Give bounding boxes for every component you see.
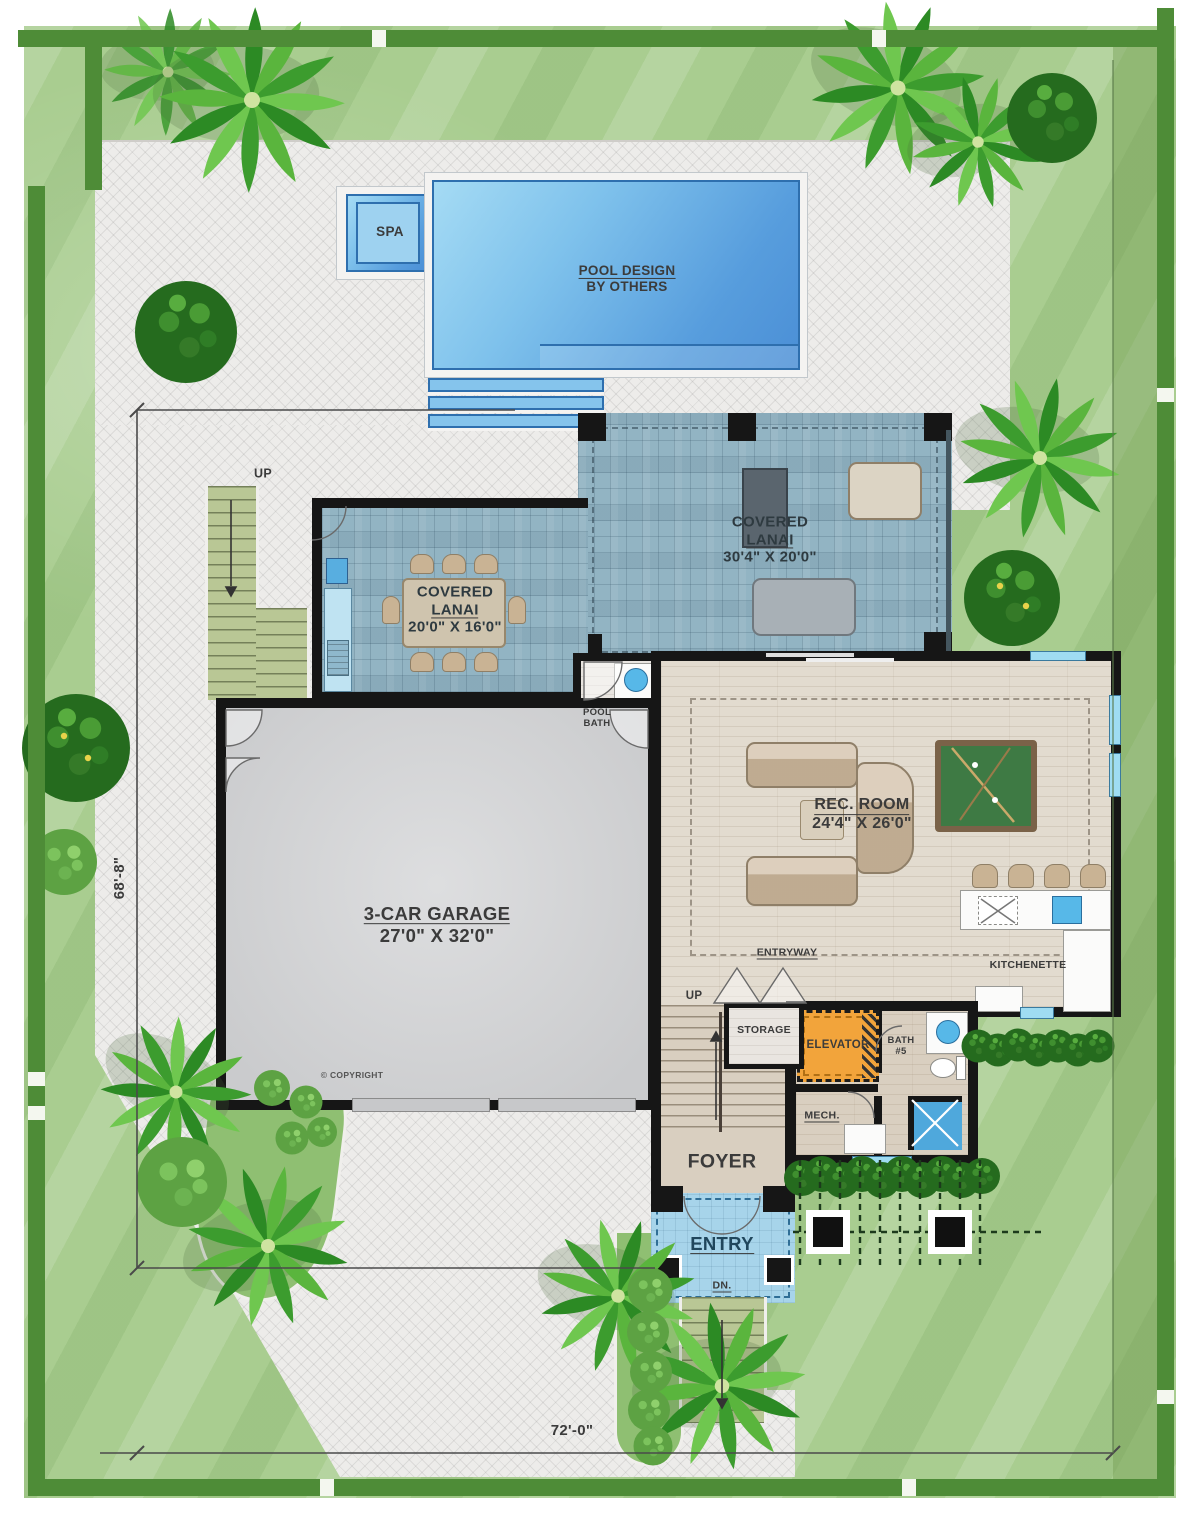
up-label-foyer: UP: [686, 990, 703, 1004]
lanai-post: [578, 413, 606, 441]
porch-post: [763, 1186, 795, 1212]
elevator-label: ELEVATOR: [806, 1039, 869, 1053]
foyer-label: FOYER: [688, 1151, 757, 1174]
dn-label: DN.: [713, 1279, 732, 1292]
property-border-left: [28, 186, 45, 1496]
porch-post: [767, 1258, 791, 1282]
lanai-left-label: COVEREDLANAI20'0" X 16'0": [408, 583, 502, 636]
chair: [442, 554, 466, 574]
border-tick: [872, 30, 886, 47]
mech-label: MECH.: [804, 1109, 839, 1122]
mech-equipment: [844, 1124, 886, 1154]
border-tick: [28, 1106, 45, 1120]
kitchenette-label: KITCHENETTE: [990, 959, 1067, 971]
pool-label: POOL DESIGNBY OTHERS: [579, 263, 676, 295]
chair: [508, 596, 526, 624]
border-tick: [902, 1479, 916, 1496]
grill: [327, 640, 349, 676]
property-border-top: [18, 30, 1174, 47]
property-border-right: [1157, 30, 1174, 1496]
pool-step-1: [428, 378, 604, 392]
pool-bath-label: POOLBATH: [583, 707, 611, 729]
toilet-tank: [956, 1056, 966, 1080]
pool-step-2: [428, 396, 604, 410]
garage-door: [498, 1098, 636, 1112]
dimension-left-label: 68'-8": [111, 857, 129, 900]
border-tick: [28, 1072, 45, 1086]
chair: [442, 652, 466, 672]
spa-label: SPA: [376, 224, 404, 240]
sofa: [746, 742, 858, 788]
sink-icon: [936, 1020, 960, 1044]
storage-label: STORAGE: [737, 1024, 791, 1036]
lanai-lounge: [848, 462, 922, 520]
entry-steps: [679, 1297, 767, 1423]
porch-post: [655, 1258, 679, 1282]
kitchenette-counter-lower: [975, 986, 1023, 1012]
pool-sun-shelf: [540, 344, 798, 368]
outdoor-stair-landing: [256, 608, 310, 700]
bar-stool: [1044, 864, 1070, 888]
bar-stool: [1080, 864, 1106, 888]
garage-door: [352, 1098, 490, 1112]
border-tick: [1157, 1390, 1174, 1404]
chair: [410, 652, 434, 672]
bar-stool: [972, 864, 998, 888]
lanai-post: [728, 413, 756, 441]
chair: [474, 554, 498, 574]
window: [1109, 695, 1121, 745]
site-plan: SPA POOL DESIGNBY OTHERS COVEREDLANAI30'…: [0, 0, 1194, 1536]
stair-rail: [719, 1012, 722, 1132]
dimension-bottom-label: 72'-0": [551, 1422, 594, 1440]
lanai-sofa: [752, 578, 856, 636]
sofa: [746, 856, 858, 906]
outdoor-fridge: [326, 558, 348, 584]
kitchenette-counter-right: [1063, 930, 1111, 1012]
chair: [410, 554, 434, 574]
porch-post: [651, 1186, 683, 1212]
outdoor-stair-run: [205, 486, 259, 700]
rec-room-label: REC. ROOM24'4" X 26'0": [812, 796, 912, 834]
entryway-label: ENTRYWAY: [757, 946, 818, 959]
border-tick: [320, 1479, 334, 1496]
lanai-screen-wall: [946, 430, 951, 660]
entry-label: ENTRY: [690, 1233, 754, 1255]
garage-label: 3-CAR GARAGE27'0" X 32'0": [364, 903, 510, 947]
lanai-right-label: COVEREDLANAI30'4" X 20'0": [723, 513, 817, 566]
window: [1109, 753, 1121, 797]
kitchen-sink-icon: [1052, 896, 1082, 924]
chair: [382, 596, 400, 624]
window: [852, 1156, 912, 1167]
border-tick: [1157, 388, 1174, 402]
chair: [474, 652, 498, 672]
property-border-corner-stub: [85, 30, 102, 190]
border-tick: [372, 30, 386, 47]
copyright-label: © COPYRIGHT: [321, 1070, 383, 1080]
partition-wall: [796, 1084, 878, 1092]
window: [1020, 1007, 1054, 1019]
window: [1030, 651, 1086, 661]
bar-stool: [1008, 864, 1034, 888]
toilet-icon: [930, 1058, 956, 1078]
up-label-outdoor: UP: [254, 467, 272, 482]
bath5-label: BATH#5: [888, 1035, 915, 1057]
sink-icon: [624, 668, 648, 692]
cooktop: [978, 896, 1018, 925]
pool-table: [935, 740, 1037, 832]
property-border-bottom: [28, 1479, 1174, 1496]
shower: [908, 1096, 962, 1150]
